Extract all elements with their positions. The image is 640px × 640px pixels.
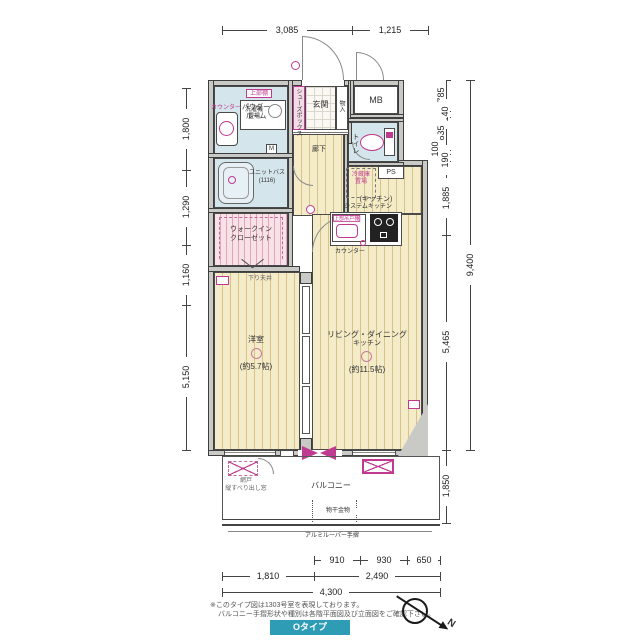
dim-label: 100 bbox=[430, 134, 440, 164]
wall bbox=[288, 80, 293, 154]
toilet-bowl bbox=[360, 134, 384, 151]
type-button[interactable]: Oタイプ bbox=[270, 620, 350, 635]
dim-label: 1,850 bbox=[441, 466, 451, 506]
dim-tick bbox=[466, 450, 475, 451]
ih-burner bbox=[374, 218, 382, 226]
dim-tick bbox=[442, 523, 451, 524]
balcony-rail bbox=[222, 519, 440, 520]
mb-door-arc bbox=[356, 52, 384, 80]
ih-burner bbox=[386, 218, 394, 226]
window-note: 網戸 bbox=[234, 478, 258, 485]
ps-label: PS bbox=[378, 169, 404, 177]
unit-bath-size: (1116) bbox=[248, 178, 286, 185]
floorplan-canvas: 3,085 1,215 1,800 1,290 1,160 5,150 785 … bbox=[0, 0, 640, 640]
bedroom-label: 洋室 bbox=[230, 335, 282, 344]
floor-bedroom bbox=[214, 272, 300, 450]
lowered-ceiling-label: 下り天井 bbox=[242, 276, 278, 283]
dim-tick bbox=[222, 588, 223, 597]
ldk-label: キッチン bbox=[340, 340, 394, 348]
mirror-label: M bbox=[266, 146, 277, 153]
dim-tick bbox=[442, 450, 451, 451]
dim-tick bbox=[440, 588, 441, 597]
dim-tick bbox=[407, 556, 408, 565]
washer-label: 洗濯機 bbox=[241, 107, 267, 114]
washer-label: 置場 bbox=[241, 114, 267, 121]
fridge-label: 冷蔵庫 bbox=[348, 172, 374, 179]
dim-label: 1,810 bbox=[250, 571, 286, 581]
dim-tick bbox=[440, 556, 441, 565]
evacuation-hatch bbox=[228, 461, 258, 476]
window-line bbox=[353, 452, 395, 453]
dim-tick bbox=[428, 26, 429, 35]
dim-label: 650 bbox=[410, 555, 438, 565]
entrance-step-line bbox=[293, 132, 348, 133]
toilet-tank-lid bbox=[386, 132, 393, 138]
louver-rail-label: アルミルーバー手摺 bbox=[294, 533, 370, 540]
sliding-door-panel[interactable] bbox=[302, 336, 310, 384]
door-number-marker bbox=[291, 61, 300, 70]
louver-rail-line bbox=[228, 531, 432, 532]
dim-label: 1,800 bbox=[181, 109, 191, 149]
window-line bbox=[225, 452, 275, 453]
ac-marker bbox=[216, 276, 229, 285]
storage-label: 物入 bbox=[338, 94, 344, 118]
kitchen-counter-label: カウンター bbox=[330, 249, 370, 256]
unit-bath-label: ユニットバス bbox=[248, 170, 286, 177]
dim-tick bbox=[466, 80, 475, 81]
washbasin-bowl bbox=[219, 121, 234, 136]
wall bbox=[348, 118, 404, 122]
dim-label: 1,885 bbox=[441, 178, 451, 218]
ldk-size-label: (約11.5帖) bbox=[330, 365, 404, 374]
window-note: 縦すべり出し窓 bbox=[216, 486, 276, 493]
dim-tick bbox=[442, 235, 451, 236]
dim-tick bbox=[314, 556, 315, 565]
mb-label: MB bbox=[354, 95, 398, 105]
dim-label: 1,160 bbox=[181, 255, 191, 295]
dim-tick bbox=[360, 556, 361, 565]
bathtub-inner bbox=[223, 167, 249, 199]
hanging-cupboard-label: 上部吊戸棚 bbox=[333, 215, 360, 222]
entrance-label: 玄関 bbox=[305, 100, 336, 109]
dim-tick bbox=[222, 572, 223, 581]
wic-label: ウォークイン bbox=[220, 226, 282, 234]
dim-label: 1,290 bbox=[181, 187, 191, 227]
bedroom-size-label: (約5.7帖) bbox=[226, 362, 286, 371]
balcony-label: バルコニー bbox=[296, 481, 366, 490]
upper-shelf-label: 上部棚 bbox=[246, 89, 272, 98]
ceiling-light bbox=[361, 351, 372, 362]
sliding-door-panel[interactable] bbox=[302, 286, 310, 334]
system-kitchen-label: システムキッチン bbox=[336, 204, 400, 211]
wall bbox=[288, 154, 293, 272]
dim-tick bbox=[314, 572, 315, 581]
dim-tick bbox=[182, 170, 191, 171]
wall bbox=[208, 208, 293, 213]
dim-label: 190 bbox=[440, 145, 450, 175]
wall bbox=[398, 80, 404, 166]
powder-counter-label: カウンター bbox=[211, 105, 245, 112]
balcony-rail bbox=[222, 524, 440, 526]
dim-tick bbox=[182, 305, 191, 306]
dim-label: 9,400 bbox=[465, 245, 475, 285]
dim-label: 910 bbox=[321, 555, 353, 565]
sliding-door-panel[interactable] bbox=[302, 386, 310, 434]
kitchen-zone-label: (キッチン) bbox=[348, 196, 404, 204]
dim-label: 4,300 bbox=[313, 587, 349, 597]
entrance-door-arc bbox=[302, 36, 344, 80]
dim-label: 5,465 bbox=[441, 322, 451, 362]
ceiling-light bbox=[251, 348, 262, 359]
shoes-box-label: シューズボックス bbox=[295, 88, 301, 130]
wall bbox=[350, 114, 404, 118]
dim-tick bbox=[440, 572, 441, 581]
dim-label: 1,215 bbox=[370, 25, 410, 35]
ldk-label: リビング・ダイニング bbox=[324, 330, 410, 339]
wall bbox=[208, 153, 293, 158]
dim-tick bbox=[182, 450, 191, 451]
kitchen-faucet bbox=[360, 240, 366, 246]
door-number-marker bbox=[306, 205, 315, 214]
dim-label: 2,490 bbox=[359, 571, 395, 581]
dim-label: 930 bbox=[368, 555, 400, 565]
kitchen-sink bbox=[336, 224, 358, 238]
dim-label: 3,085 bbox=[267, 25, 307, 35]
laundry-hardware-label: 物干金物 bbox=[316, 508, 360, 515]
balcony-equipment-box bbox=[362, 459, 394, 474]
wic-label: クローゼット bbox=[220, 235, 282, 243]
ac-marker bbox=[408, 400, 420, 409]
dim-tick bbox=[182, 88, 191, 89]
hallway-label: 廊下 bbox=[304, 146, 334, 154]
ih-panel bbox=[380, 232, 387, 238]
fridge-label: 置場 bbox=[348, 179, 374, 186]
toilet-label: トイレ bbox=[352, 127, 359, 159]
bath-drain bbox=[228, 176, 236, 184]
wall bbox=[300, 272, 312, 284]
dim-label: 5,150 bbox=[181, 357, 191, 397]
dim-tick bbox=[222, 26, 223, 35]
dim-tick bbox=[352, 26, 353, 35]
dim-tick bbox=[182, 245, 191, 246]
